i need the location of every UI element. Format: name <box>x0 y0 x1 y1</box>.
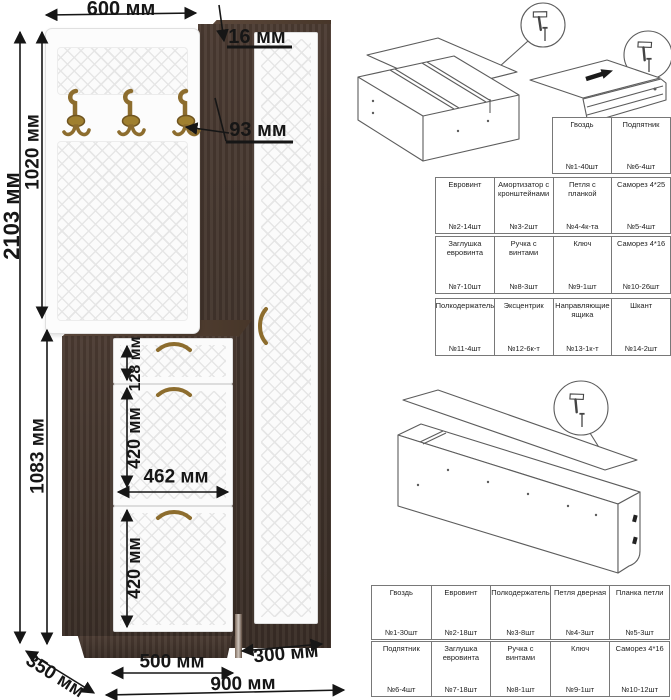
part-cell: Эксцентрик№12-6к-т <box>494 299 553 355</box>
dim-top-width: 600 мм <box>87 0 156 19</box>
part-name: Евровинт <box>444 589 477 598</box>
hardware-table-lower: Гвоздь№1-30штЕвровинт№2-18штПолкодержате… <box>371 585 670 698</box>
part-cell: Ручка с винтами№8-3шт <box>494 237 553 293</box>
part-cell: Петля дверная№4-3шт <box>550 586 610 639</box>
dim-total-height: 2103 мм <box>1 172 23 260</box>
part-cell: Саморез 4*16№10-12шт <box>609 642 669 696</box>
dim-upper-height: 1020 мм <box>24 114 43 190</box>
parts-row: Полкодержатель№11-4штЭксцентрик№12-6к-тН… <box>435 298 671 356</box>
part-name: Направляющие ящика <box>555 302 611 319</box>
part-qty: №9-1шт <box>568 282 596 291</box>
part-qty: №6-4шт <box>387 685 415 694</box>
parts-row: Подпятник№6-4штЗаглушка евровинта№7-18шт… <box>371 641 670 697</box>
part-qty: №4-3шт <box>566 628 594 637</box>
hardware-table-upper: Гвоздь№1-40штПодпятник№6-4штЕвровинт№2-1… <box>435 117 671 358</box>
part-name: Гвоздь <box>570 121 593 130</box>
part-name: Подпятник <box>383 645 420 654</box>
part-name: Ключ <box>571 645 589 654</box>
dim-inner-width: 462 мм <box>143 468 208 487</box>
part-cell: Ключ№9-1шт <box>550 642 610 696</box>
part-qty: №10-26шт <box>623 282 660 291</box>
part-name: Планка петли <box>616 589 664 598</box>
part-qty: №10-12шт <box>621 685 658 694</box>
part-cell: Подпятник№6-4шт <box>611 118 670 173</box>
part-name: Саморез 4*25 <box>617 181 665 190</box>
parts-row: Заглушка евровинта№7-10штРучка с винтами… <box>435 236 671 294</box>
hammer-callout-3 <box>554 381 608 435</box>
part-name: Амортизатор с кронштейнами <box>496 181 552 198</box>
part-name: Петля дверная <box>554 589 606 598</box>
part-qty: №3-2шт <box>509 222 537 231</box>
part-cell: Гвоздь№1-40шт <box>553 118 611 173</box>
part-name: Заглушка евровинта <box>433 645 490 662</box>
part-qty: №1-40шт <box>566 162 599 171</box>
part-cell: Ручка с винтами№8-1шт <box>490 642 550 696</box>
parts-row: Евровинт№2-14штАмортизатор с кронштейнам… <box>435 177 671 234</box>
part-qty: №12-6к-т <box>507 344 539 353</box>
part-cell: Петля с планкой№4-4к-та <box>553 178 612 233</box>
wardrobe-assembly-diagram <box>338 365 671 580</box>
part-qty: №11-4шт <box>449 344 481 353</box>
drawer-assembly-diagram <box>520 28 671 123</box>
part-cell: Подпятник№6-4шт <box>372 642 431 696</box>
part-cell: Амортизатор с кронштейнами№3-2шт <box>494 178 553 233</box>
part-cell: Гвоздь№1-30шт <box>372 586 431 639</box>
part-name: Гвоздь <box>390 589 413 598</box>
dim-total-width: 900 мм <box>210 674 275 694</box>
part-name: Петля с планкой <box>555 181 611 198</box>
part-qty: №1-30шт <box>385 628 418 637</box>
part-qty: №8-3шт <box>509 282 537 291</box>
part-qty: №13-1к-т <box>566 344 598 353</box>
part-qty: №4-4к-та <box>566 222 598 231</box>
part-cell: Шкант№14-2шт <box>611 299 670 355</box>
part-cell: Планка петли№5-3шт <box>609 586 669 639</box>
dim-hook-offset: 93 мм <box>229 120 286 140</box>
part-qty: №7-18шт <box>445 685 478 694</box>
part-qty: №8-1шт <box>506 685 534 694</box>
part-cell: Саморез 4*25№5-4шт <box>611 178 670 233</box>
assembly-instruction-sheet: 600 мм 16 мм 93 мм 2103 мм 1020 мм 1083 … <box>0 0 671 700</box>
part-name: Саморез 4*16 <box>616 645 664 654</box>
part-cell: Евровинт№2-18шт <box>431 586 491 639</box>
part-name: Саморез 4*16 <box>617 240 665 249</box>
part-qty: №3-8шт <box>506 628 534 637</box>
part-cell: Ключ№9-1шт <box>553 237 612 293</box>
dim-drawer-front: 128 мм <box>128 337 144 392</box>
part-name: Ручка с винтами <box>496 240 552 257</box>
part-name: Полкодержатель <box>491 589 549 598</box>
part-name: Полкодержатель <box>436 302 494 311</box>
dim-lower-height: 1083 мм <box>29 418 48 494</box>
part-name: Заглушка евровинта <box>437 240 493 257</box>
part-name: Шкант <box>630 302 652 311</box>
part-qty: №2-14шт <box>449 222 482 231</box>
parts-row: Гвоздь№1-30штЕвровинт№2-18штПолкодержате… <box>371 585 670 640</box>
part-cell: Полкодержатель№3-8шт <box>490 586 550 639</box>
part-cell: Саморез 4*16№10-26шт <box>611 237 670 293</box>
part-name: Подпятник <box>623 121 660 130</box>
part-qty: №5-3шт <box>626 628 654 637</box>
part-qty: №6-4шт <box>627 162 655 171</box>
part-name: Ключ <box>573 240 591 249</box>
dimension-lines <box>0 0 345 700</box>
part-qty: №2-18шт <box>445 628 478 637</box>
part-qty: №14-2шт <box>625 344 658 353</box>
part-cell: Заглушка евровинта№7-10шт <box>436 237 494 293</box>
part-cell: Полкодержатель№11-4шт <box>436 299 494 355</box>
long-carcass-sketch <box>398 424 640 573</box>
part-cell: Заглушка евровинта№7-18шт <box>431 642 491 696</box>
dim-cabinet-width: 500 мм <box>139 653 204 672</box>
parts-row: Гвоздь№1-40штПодпятник№6-4шт <box>552 117 671 174</box>
part-cell: Евровинт№2-14шт <box>436 178 494 233</box>
part-name: Эксцентрик <box>504 302 544 311</box>
part-cell: Направляющие ящика№13-1к-т <box>553 299 612 355</box>
part-name: Ручка с винтами <box>492 645 549 662</box>
part-name: Евровинт <box>448 181 481 190</box>
part-qty: №7-10шт <box>449 282 482 291</box>
dim-flap-upper: 420 мм <box>125 407 143 469</box>
part-qty: №9-1шт <box>566 685 594 694</box>
part-qty: №5-4шт <box>627 222 655 231</box>
dim-panel-thickness: 16 мм <box>228 27 285 47</box>
dim-flap-lower: 420 мм <box>125 537 143 599</box>
